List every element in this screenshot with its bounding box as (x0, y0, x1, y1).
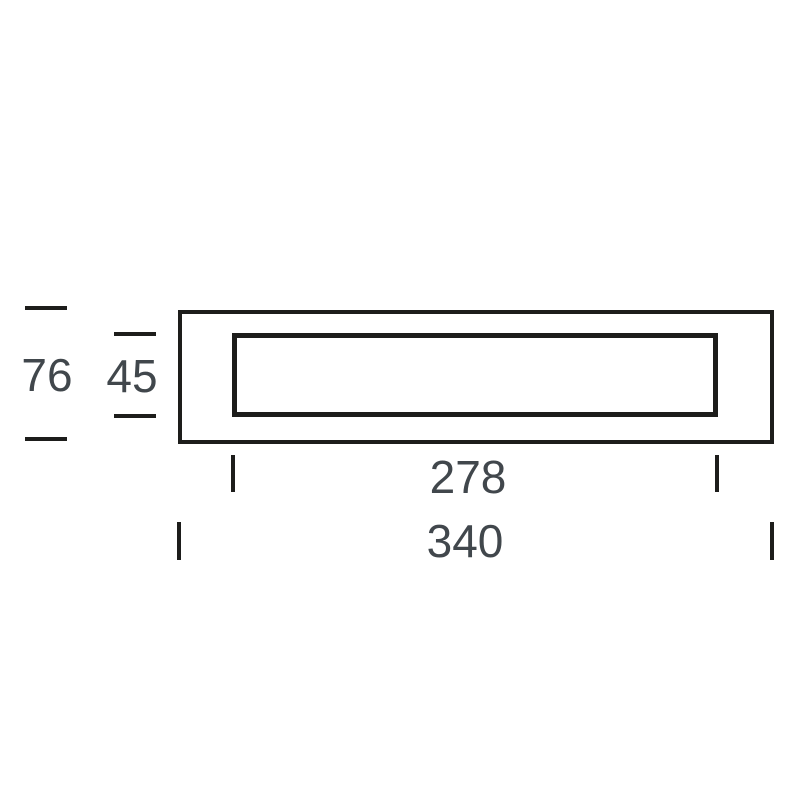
inner-width-dimension-label: 278 (430, 454, 507, 500)
inner-height-dimension-label: 45 (106, 353, 157, 399)
outer-height-bottom-tick (25, 437, 67, 441)
outer-width-left-tick (177, 522, 181, 560)
dimension-drawing: 76 45 278 340 (0, 0, 800, 800)
outer-height-dimension-label: 76 (21, 352, 72, 398)
inner-width-left-tick (231, 455, 235, 492)
inner-rectangle (232, 333, 718, 417)
outer-height-top-tick (25, 306, 67, 310)
inner-height-bottom-tick (114, 414, 156, 418)
inner-width-right-tick (715, 455, 719, 492)
outer-width-right-tick (770, 522, 774, 560)
inner-height-top-tick (114, 332, 156, 336)
outer-width-dimension-label: 340 (427, 518, 504, 564)
